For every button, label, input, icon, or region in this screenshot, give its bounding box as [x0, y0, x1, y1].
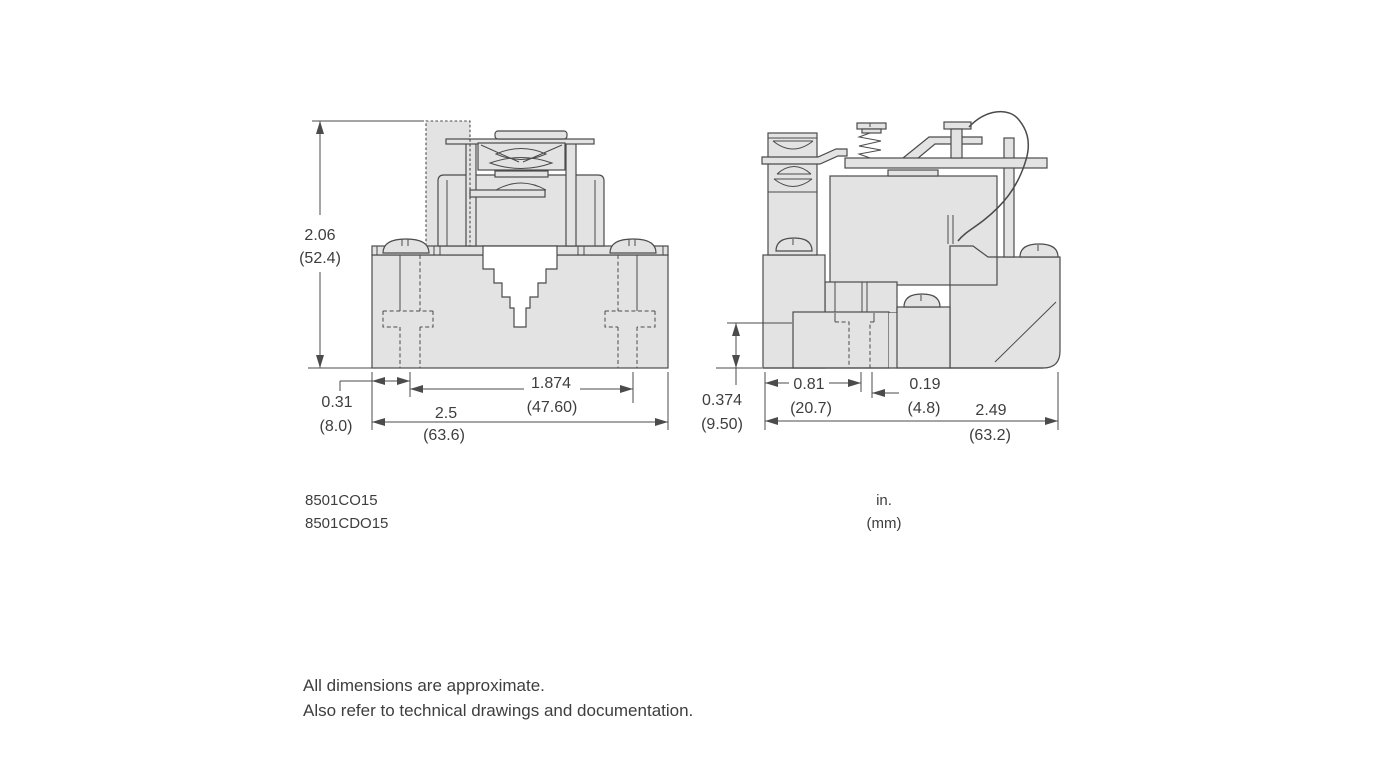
spring-screw-icon [857, 123, 886, 158]
dim-width-mm-label: (63.6) [423, 427, 465, 444]
dim-slot-width-mm-label: (4.8) [908, 400, 941, 417]
dim-slot-offset-mm-label: (20.7) [790, 400, 832, 417]
dim-slot-spacing-mm-label: (47.60) [527, 399, 578, 416]
model-number-1: 8501CO15 [305, 492, 378, 509]
dim-slot-height-in-label: 0.374 [702, 392, 742, 409]
dim-depth-in-label: 2.49 [975, 402, 1006, 419]
contact-top-block [495, 131, 567, 139]
middle-base-block [897, 307, 950, 368]
contact-box [478, 143, 565, 170]
armature-plate [470, 190, 545, 197]
contact-stack [768, 133, 817, 255]
terminal-screw-left-icon [383, 239, 429, 253]
dim-slot-height-mm-label: (9.50) [701, 416, 743, 433]
top-bracket-plate [845, 158, 1047, 168]
dim-height-in-label: 2.06 [304, 227, 335, 244]
center-block [438, 175, 604, 246]
footnote-1: All dimensions are approximate. [303, 676, 545, 695]
dim-offset-in-label: 0.31 [321, 394, 352, 411]
support-rod [1004, 138, 1014, 257]
technical-drawing-page: 2.06 (52.4) 0.31 (8.0) 1.874 (47.60) 2.5… [0, 0, 1394, 775]
dim-slot-spacing-in-label: 1.874 [531, 375, 571, 392]
terminal-box [825, 282, 897, 313]
model-number-2: 8501CDO15 [305, 515, 388, 532]
contact-bar [495, 171, 548, 177]
dim-slot-offset-in-label: 0.81 [793, 376, 824, 393]
technical-drawing-canvas: 2.06 (52.4) 0.31 (8.0) 1.874 (47.60) 2.5… [0, 0, 1394, 775]
bracket-strap-right [566, 143, 576, 246]
bottom-extension-lines [372, 372, 668, 430]
dim-depth-mm-label: (63.2) [969, 427, 1011, 444]
dim-width-in-label: 2.5 [435, 405, 457, 422]
coil-top-tab [888, 170, 938, 176]
middle-screw-icon [904, 294, 940, 307]
left-view-front-drawing: 2.06 (52.4) 0.31 (8.0) 1.874 (47.60) 2.5… [299, 121, 668, 444]
dim-slot-width-in-label: 0.19 [909, 376, 940, 393]
coil-spring-icon [859, 133, 881, 158]
terminal-screw-right-icon [610, 239, 656, 253]
dim-offset-mm-label: (8.0) [320, 418, 353, 435]
footnote-2: Also refer to technical drawings and doc… [303, 701, 693, 720]
right-base-block-fill [950, 246, 1060, 368]
dim-height-mm-label: (52.4) [299, 250, 341, 267]
slot-step-block [793, 312, 889, 368]
right-view-side-drawing: 0.374 (9.50) 0.81 (20.7) 0.19 (4.8) 2.49… [701, 112, 1060, 444]
stack-screw-icon [776, 238, 812, 251]
units-in-label: in. [876, 492, 892, 509]
units-mm-label: (mm) [867, 515, 902, 532]
right-top-screw-icon [1020, 244, 1058, 257]
